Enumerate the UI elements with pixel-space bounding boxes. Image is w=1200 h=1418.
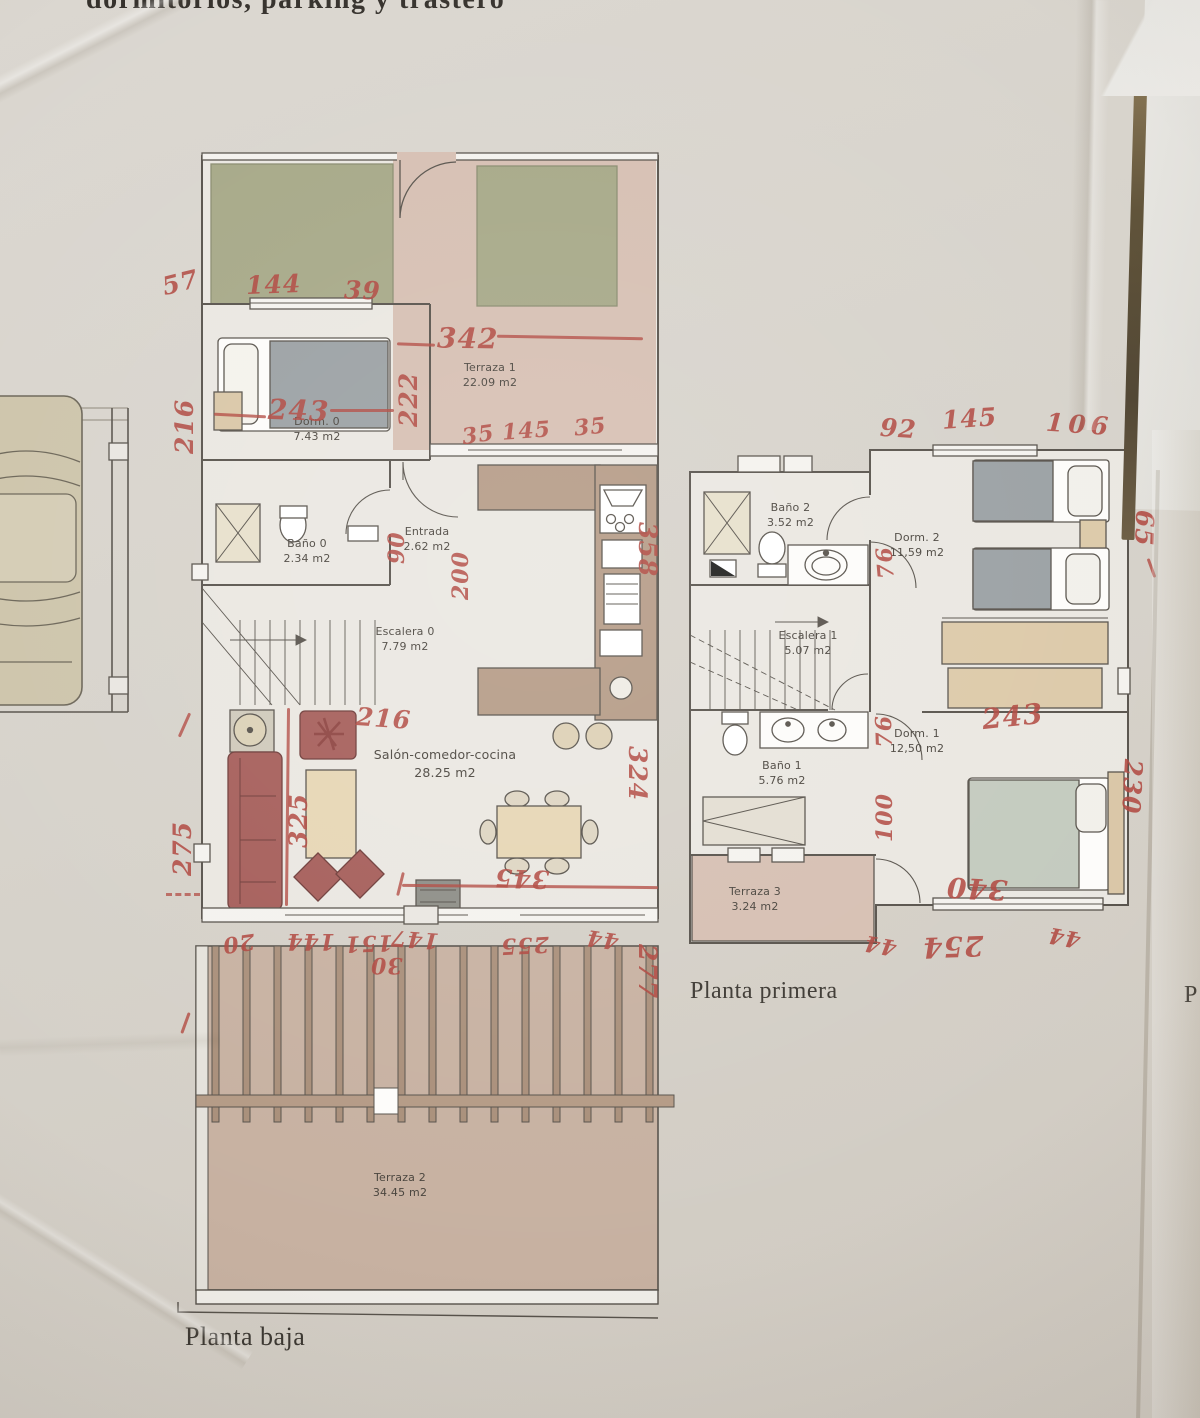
room-area: 5.76 m2 — [732, 773, 832, 788]
room-name: Baño 0 — [252, 536, 362, 551]
room-name: Escalera 1 — [748, 628, 868, 643]
paper-crease-topleft — [0, 0, 212, 114]
dim-39: 39 — [344, 275, 382, 305]
car — [0, 396, 82, 705]
sofa — [228, 752, 282, 910]
dim-243b: 243 — [980, 697, 1045, 736]
caption-partial-right: P — [1184, 982, 1198, 1009]
room-label-salon: Salón-comedor-cocina 28.25 m2 — [330, 746, 560, 781]
salon-windows — [202, 906, 658, 924]
room-label-escalera0: Escalera 0 7.79 m2 — [340, 624, 470, 655]
dim-dash-left — [166, 893, 200, 896]
room-area: 2.34 m2 — [252, 551, 362, 566]
terraza2-border — [178, 1290, 658, 1318]
dim-76b: 76 — [871, 714, 898, 748]
dim-243: 243 — [267, 393, 330, 428]
dim-230: 230 — [1116, 758, 1148, 815]
caption-planta-baja: Planta baja — [185, 1322, 305, 1352]
dim-222: 222 — [394, 372, 423, 427]
room-area: 34.45 m2 — [330, 1185, 470, 1200]
room-name: Escalera 0 — [340, 624, 470, 639]
dim-345: 345 — [494, 863, 550, 894]
document-title-fragment: dormitorios, parking y trastero — [86, 0, 746, 16]
room-label-bano2: Baño 2 3.52 m2 — [738, 500, 843, 531]
dim-line-243-right — [330, 409, 394, 412]
dim-277: 277 — [633, 944, 662, 999]
dim-147: 147 — [389, 924, 440, 953]
paper-crease-vertical — [1068, 0, 1111, 430]
dim-144b: 144 — [286, 928, 335, 954]
room-label-escalera1: Escalera 1 5.07 m2 — [748, 628, 868, 659]
room-area: 3.24 m2 — [700, 899, 810, 914]
room-name: Terraza 1 — [425, 360, 555, 375]
room-area: 3.52 m2 — [738, 515, 843, 530]
dim-255: 255 — [499, 931, 549, 960]
room-name: Terraza 3 — [700, 884, 810, 899]
wardrobes — [942, 618, 1108, 708]
dim-106: 106 — [1045, 408, 1114, 442]
dim-145b: 145 — [941, 402, 998, 435]
corner-highlight — [1056, 0, 1200, 96]
dim-76a: 76 — [871, 545, 900, 580]
room-label-terraza3: Terraza 3 3.24 m2 — [700, 884, 810, 915]
dim-200: 200 — [448, 551, 474, 600]
dim-92: 92 — [879, 413, 918, 444]
room-name: Baño 2 — [738, 500, 843, 515]
dim-145: 145 — [501, 416, 552, 445]
dim-324: 324 — [623, 746, 652, 801]
caption-planta-primera: Planta primera — [690, 978, 838, 1005]
dim-144: 144 — [246, 269, 302, 300]
room-label-terraza1: Terraza 1 22.09 m2 — [425, 360, 555, 391]
dim-340: 340 — [945, 870, 1008, 906]
planta-baja-drawing — [0, 140, 680, 1320]
dim-44b: 44 — [862, 929, 899, 960]
room-name: Salón-comedor-cocina — [330, 746, 560, 764]
room-label-terraza2: Terraza 2 34.45 m2 — [330, 1170, 470, 1201]
room-label-bano0: Baño 0 2.34 m2 — [252, 536, 362, 567]
dim-20: 20 — [220, 928, 256, 958]
side-table — [230, 710, 274, 752]
room-area: 5.07 m2 — [748, 643, 868, 658]
dim-44a: 44 — [584, 924, 620, 954]
room-name: Terraza 2 — [330, 1170, 470, 1185]
room-name: Baño 1 — [732, 758, 832, 773]
room-area: 28.25 m2 — [330, 764, 560, 782]
dim-100: 100 — [872, 793, 898, 842]
dim-265: 265 — [1129, 491, 1160, 547]
room-area: 22.09 m2 — [425, 375, 555, 390]
document-title-text: dormitorios, parking y trastero — [86, 0, 505, 16]
room-area: 7.79 m2 — [340, 639, 470, 654]
dim-35a: 35 — [460, 420, 496, 450]
room-area: 7.43 m2 — [262, 429, 372, 444]
dim-216-salon: 216 — [355, 702, 412, 735]
dim-30: 30 — [370, 952, 403, 978]
room-label-bano1: Baño 1 5.76 m2 — [732, 758, 832, 789]
coffee-table — [306, 770, 356, 858]
floorplan-photo: dormitorios, parking y trastero — [0, 0, 1200, 1418]
dim-358: 358 — [633, 522, 662, 577]
dim-342: 342 — [437, 321, 499, 355]
dim-35b: 35 — [573, 412, 608, 441]
dim-44c: 44 — [1046, 921, 1083, 952]
dim-216-left: 216 — [170, 399, 199, 454]
dim-254: 254 — [921, 929, 984, 964]
dim-275: 275 — [168, 821, 197, 876]
paper-right-strip — [1152, 430, 1200, 1418]
dim-90: 90 — [384, 531, 410, 564]
room-name: Dorm. 2 — [862, 530, 972, 545]
